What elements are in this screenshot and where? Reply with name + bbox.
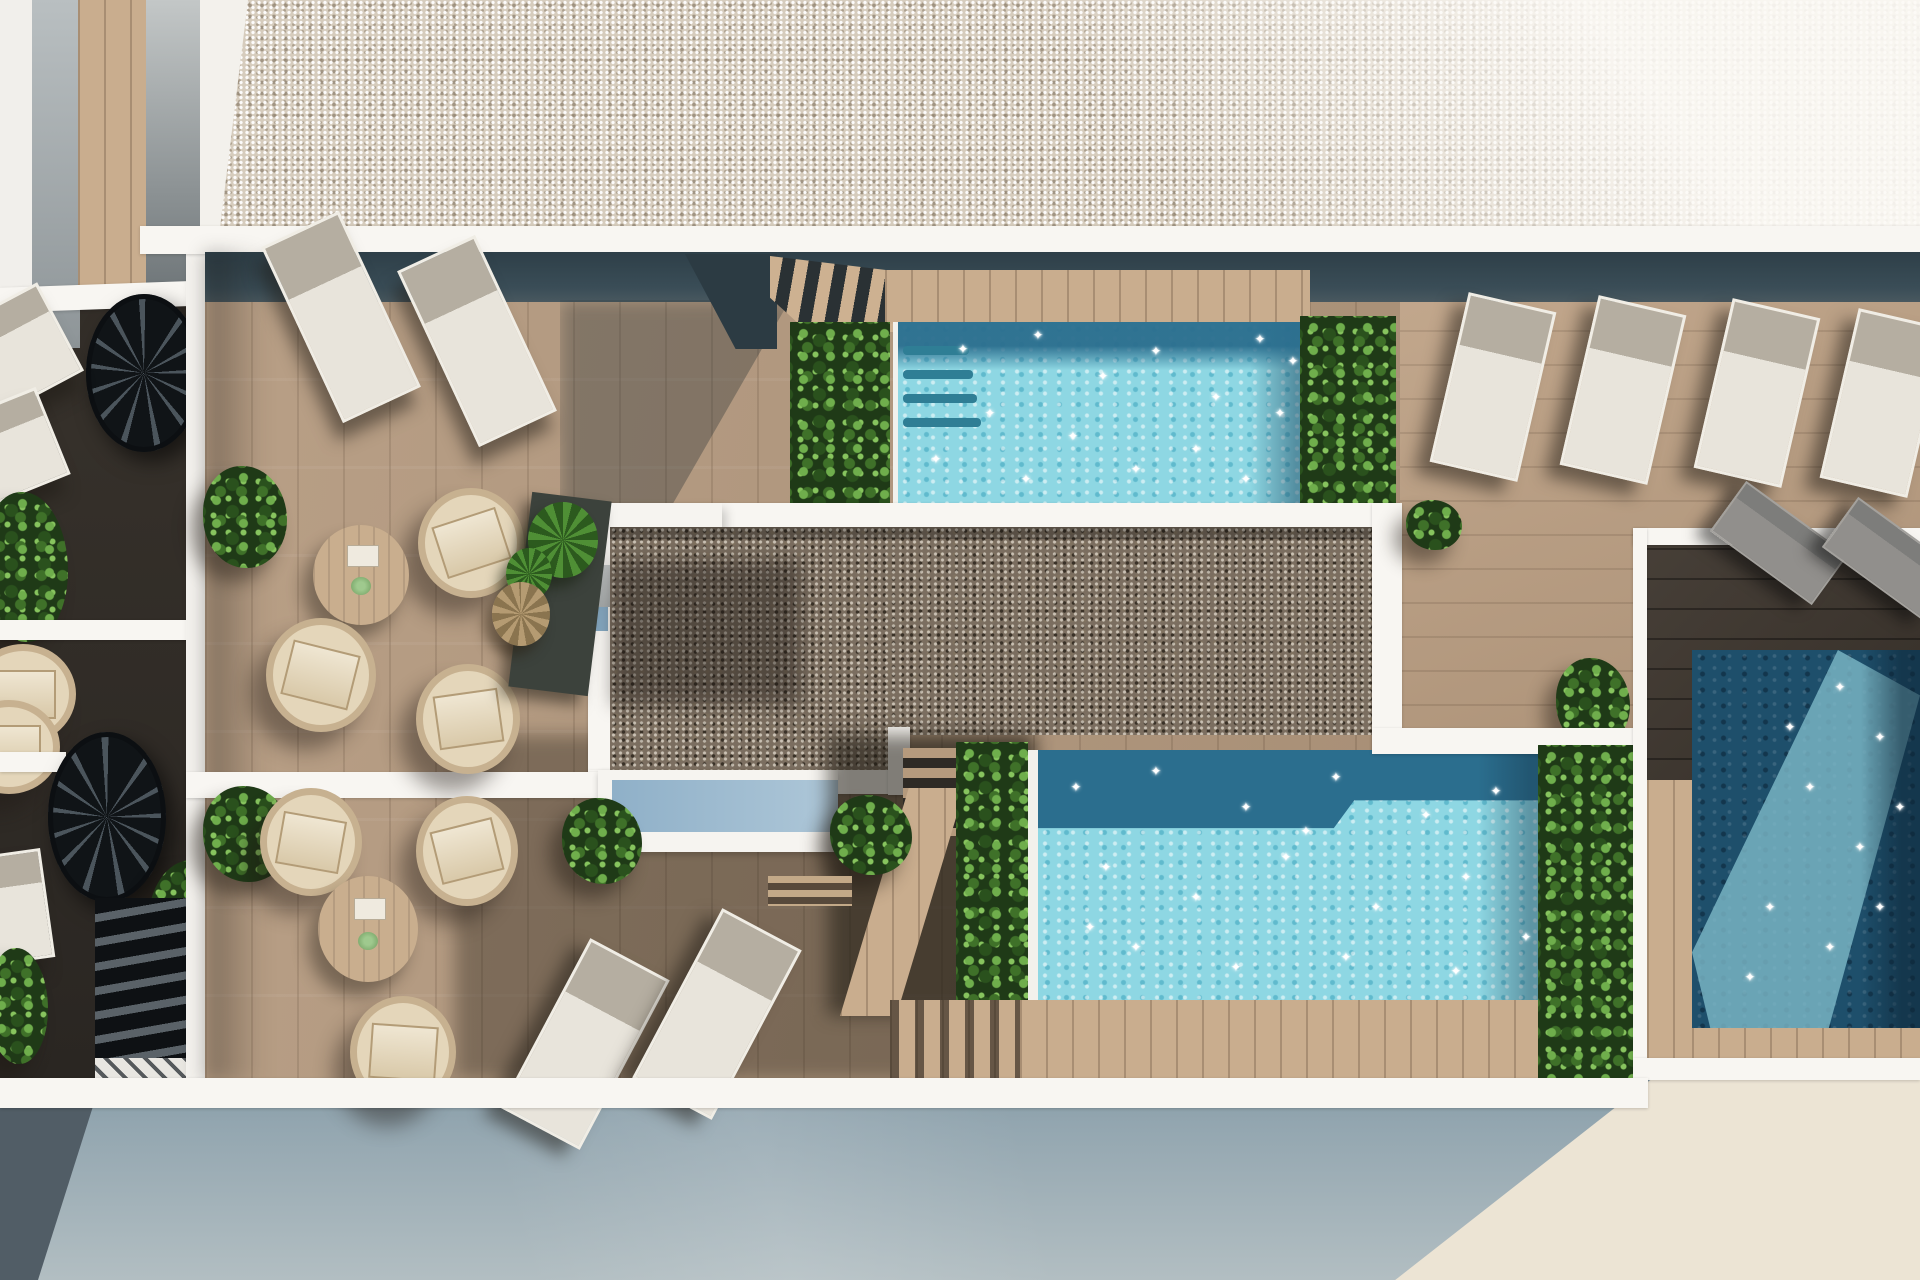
top-pool-left-planter xyxy=(790,322,890,512)
private-terrace-bottom-border xyxy=(1633,1058,1920,1080)
sparkle-icon: ✦ xyxy=(1875,732,1886,745)
sparkle-icon: ✦ xyxy=(1301,826,1312,839)
private-pool: ✦✦✦✦✦✦✦✦✦✦ xyxy=(1692,650,1920,1028)
private-pool-side-deck xyxy=(1647,780,1693,1060)
private-pool-right-shade xyxy=(1692,650,1920,1028)
sparkle-icon: ✦ xyxy=(1805,782,1816,795)
upper-coffee-table xyxy=(313,525,409,625)
sparkle-icon: ✦ xyxy=(985,408,996,421)
center-pool-left-planter xyxy=(956,742,1028,1014)
spiral-staircase-lower xyxy=(48,732,166,902)
table-tray xyxy=(347,545,379,567)
top-parapet-walkway xyxy=(140,226,1920,254)
chair-cushion xyxy=(275,811,347,874)
top-pool-deck-strip xyxy=(885,270,1310,324)
table-plant xyxy=(358,932,378,950)
sparkle-icon: ✦ xyxy=(1255,334,1266,347)
street-light-streak xyxy=(120,1100,1420,1280)
top-pool: ✦✦✦✦✦✦✦✦✦✦✦✦✦✦✦ xyxy=(893,322,1310,508)
sparkle-icon: ✦ xyxy=(1281,852,1292,865)
chair-cushion xyxy=(431,507,511,579)
left-wood-facade xyxy=(78,0,148,292)
path-bush xyxy=(830,795,912,875)
sparkle-icon: ✦ xyxy=(1491,786,1502,799)
gravel-top-edge-shade xyxy=(610,527,1375,539)
sparkle-icon: ✦ xyxy=(1331,772,1342,785)
sparkle-icon: ✦ xyxy=(1765,902,1776,915)
pool-underwater-step xyxy=(903,394,977,403)
upper-chair-w xyxy=(266,618,376,732)
sparkle-icon: ✦ xyxy=(1151,766,1162,779)
sparkle-icon: ✦ xyxy=(1101,862,1112,875)
sparkle-icon: ✦ xyxy=(1021,474,1032,487)
spiral-staircase-upper xyxy=(86,294,202,452)
sparkle-icon: ✦ xyxy=(958,344,969,357)
rooftop-terrace-render: ✦✦✦✦✦✦✦✦✦✦✦✦✦✦✦ ✦✦✦✦✦✦✦✦✦✦✦✦✦✦✦✦✦✦ xyxy=(0,0,1920,1280)
gravel-shadow-corner xyxy=(612,560,802,705)
private-terrace-left-border xyxy=(1633,528,1647,1065)
sparkle-icon: ✦ xyxy=(1341,952,1352,965)
sparkle-icon: ✦ xyxy=(1241,474,1252,487)
sparkle-icon: ✦ xyxy=(1033,330,1044,343)
sparkle-icon: ✦ xyxy=(1068,431,1079,444)
skylight-glass xyxy=(612,780,838,832)
lower-group-bush-right xyxy=(562,798,642,884)
sparkle-icon: ✦ xyxy=(1241,802,1252,815)
sparkle-icon: ✦ xyxy=(1895,802,1906,815)
center-pool: ✦✦✦✦✦✦✦✦✦✦✦✦✦✦✦✦✦✦ xyxy=(1028,750,1548,1002)
sparkle-icon: ✦ xyxy=(1131,464,1142,477)
dry-grass-plant xyxy=(492,582,550,646)
sparkle-icon: ✦ xyxy=(1451,966,1462,979)
sparkle-icon: ✦ xyxy=(1521,932,1532,945)
terrace-bottom-parapet xyxy=(0,1078,1648,1108)
left-walkway-small xyxy=(0,752,66,772)
bottom-boardwalk-slats xyxy=(890,1000,1020,1082)
sparkle-icon: ✦ xyxy=(1275,408,1286,421)
chair-cushion xyxy=(368,1022,438,1081)
sparkle-icon: ✦ xyxy=(1835,682,1846,695)
pool-underwater-step xyxy=(903,418,981,427)
private-pool-bottom-deck xyxy=(1692,1028,1920,1060)
upper-chair-se xyxy=(416,664,520,774)
sparkle-icon: ✦ xyxy=(1231,962,1242,975)
top-pool-right-planter xyxy=(1300,316,1396,512)
sparkle-icon: ✦ xyxy=(931,454,942,467)
deck-shadow-left-wall xyxy=(205,252,265,1082)
sparkle-icon: ✦ xyxy=(1191,892,1202,905)
gravel-right-border xyxy=(1372,503,1402,753)
chair-cushion xyxy=(281,639,362,710)
left-walkway-mid xyxy=(0,620,190,640)
gravel-roof-sunglare xyxy=(208,0,1920,228)
sparkle-icon: ✦ xyxy=(1191,444,1202,457)
right-deck-bush-small xyxy=(1406,500,1462,550)
sparkle-icon: ✦ xyxy=(1151,346,1162,359)
chair-cushion xyxy=(430,817,505,885)
sparkle-icon: ✦ xyxy=(1071,782,1082,795)
sparkle-icon: ✦ xyxy=(1211,392,1222,405)
sparkle-icon: ✦ xyxy=(1421,810,1432,823)
sparkle-icon: ✦ xyxy=(1875,902,1886,915)
chair-cushion xyxy=(432,688,504,750)
sparkle-icon: ✦ xyxy=(1745,972,1756,985)
sparkle-icon: ✦ xyxy=(1855,842,1866,855)
sparkle-icon: ✦ xyxy=(1288,356,1299,369)
sparkle-icon: ✦ xyxy=(1461,872,1472,885)
center-pool-right-planter xyxy=(1538,745,1638,1078)
pool-underwater-step xyxy=(903,370,973,379)
sparkle-icon: ✦ xyxy=(1371,902,1382,915)
sparkle-icon: ✦ xyxy=(1825,942,1836,955)
mini-steps xyxy=(768,876,852,906)
lower-chair-ne xyxy=(416,796,518,906)
sparkle-icon: ✦ xyxy=(1131,942,1142,955)
lower-coffee-table xyxy=(318,876,418,982)
sparkle-icon: ✦ xyxy=(1085,922,1096,935)
sparkle-icon: ✦ xyxy=(1785,722,1796,735)
table-plant xyxy=(351,577,371,595)
table-tray xyxy=(354,898,386,920)
sparkle-icon: ✦ xyxy=(1098,371,1109,384)
